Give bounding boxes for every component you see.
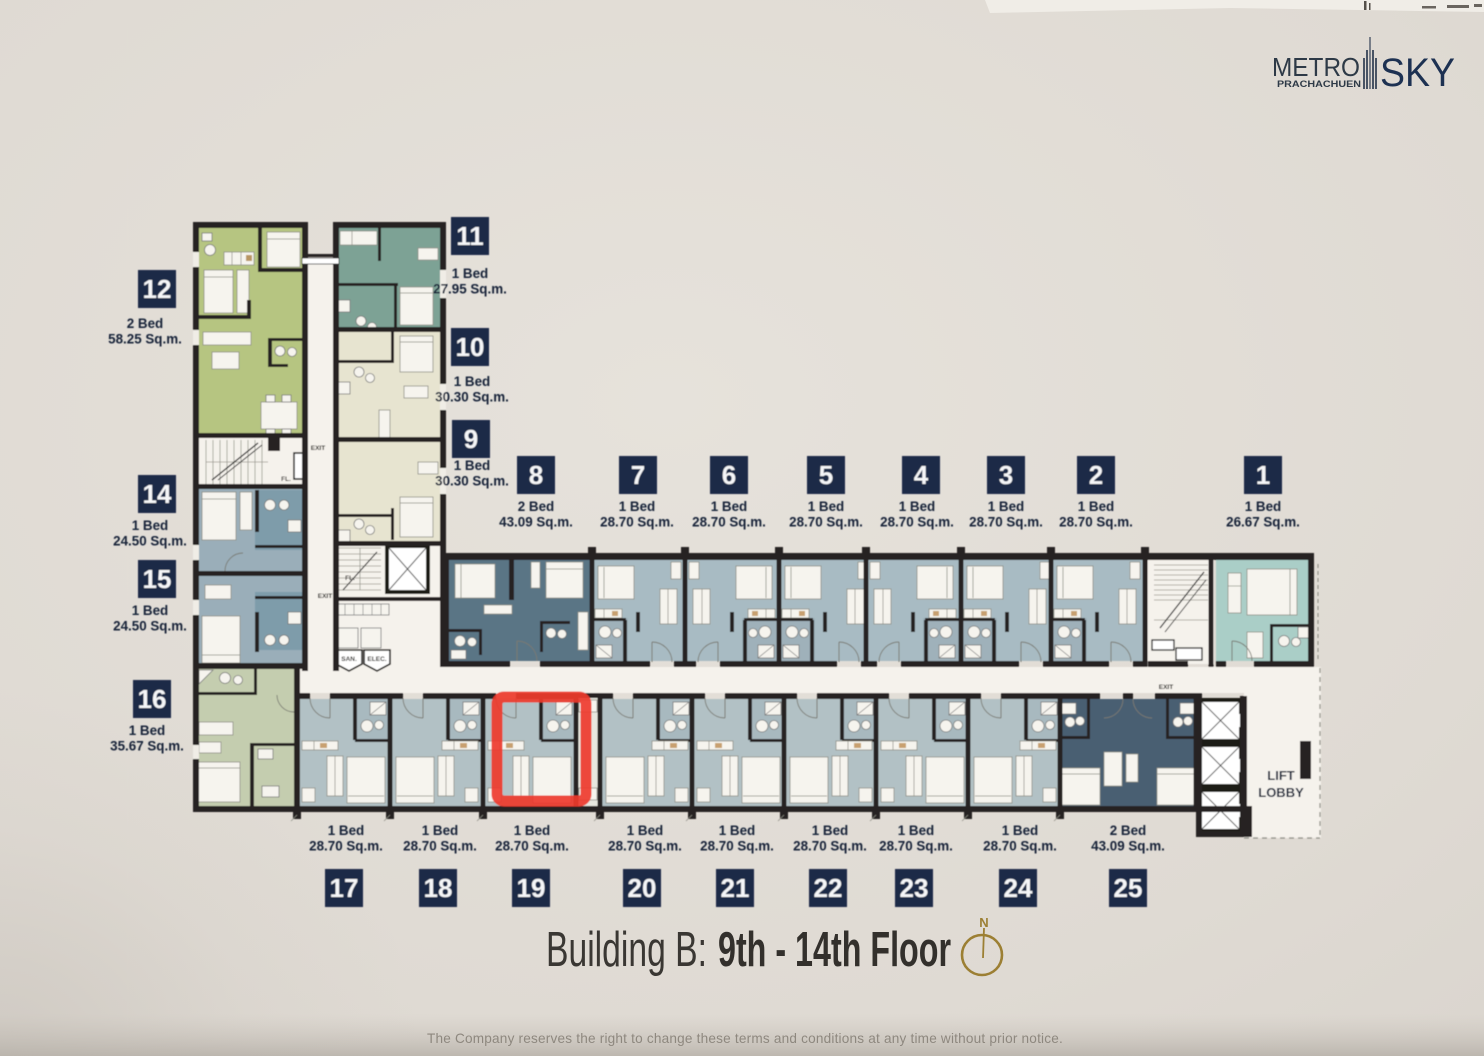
svg-text:1 Bed: 1 Bed: [132, 603, 168, 618]
svg-text:1 Bed: 1 Bed: [627, 823, 663, 838]
svg-text:28.70 Sq.m.: 28.70 Sq.m.: [793, 839, 867, 854]
svg-text:SKY: SKY: [1380, 51, 1455, 95]
svg-text:30.30 Sq.m.: 30.30 Sq.m.: [435, 474, 509, 489]
svg-text:METRO: METRO: [1272, 52, 1360, 82]
svg-text:9: 9: [464, 424, 478, 454]
svg-text:SAN.: SAN.: [341, 656, 357, 663]
svg-text:28.70 Sq.m.: 28.70 Sq.m.: [880, 515, 954, 530]
svg-text:28.70 Sq.m.: 28.70 Sq.m.: [600, 515, 674, 530]
svg-text:PRACHACHUEN: PRACHACHUEN: [1277, 79, 1361, 89]
svg-text:28.70 Sq.m.: 28.70 Sq.m.: [309, 839, 383, 854]
svg-text:1 Bed: 1 Bed: [514, 823, 550, 838]
svg-text:1 Bed: 1 Bed: [808, 499, 844, 514]
svg-text:20: 20: [628, 873, 657, 903]
svg-text:1 Bed: 1 Bed: [452, 266, 488, 281]
svg-text:9th - 14th Floor: 9th - 14th Floor: [718, 923, 951, 977]
svg-text:43.09 Sq.m.: 43.09 Sq.m.: [1091, 839, 1165, 854]
svg-text:2 Bed: 2 Bed: [518, 499, 554, 514]
svg-text:21: 21: [721, 873, 750, 903]
svg-text:2: 2: [1089, 460, 1103, 490]
svg-text:18: 18: [424, 873, 453, 903]
svg-text:1 Bed: 1 Bed: [719, 823, 755, 838]
svg-text:1 Bed: 1 Bed: [711, 499, 747, 514]
svg-text:12: 12: [143, 274, 172, 304]
svg-text:ELEC.: ELEC.: [367, 656, 386, 663]
svg-text:2 Bed: 2 Bed: [1110, 823, 1146, 838]
svg-text:11: 11: [456, 221, 484, 251]
svg-text:1 Bed: 1 Bed: [812, 823, 848, 838]
svg-text:28.70 Sq.m.: 28.70 Sq.m.: [403, 839, 477, 854]
svg-text:LIFT: LIFT: [1267, 768, 1294, 783]
svg-text:6: 6: [722, 460, 736, 490]
svg-text:4: 4: [914, 460, 929, 490]
svg-text:7: 7: [631, 460, 645, 490]
svg-text:28.70 Sq.m.: 28.70 Sq.m.: [969, 515, 1043, 530]
svg-text:1 Bed: 1 Bed: [422, 823, 458, 838]
svg-text:N: N: [979, 915, 988, 930]
svg-text:Building B:: Building B:: [546, 923, 707, 977]
svg-text:28.70 Sq.m.: 28.70 Sq.m.: [879, 839, 953, 854]
svg-text:28.70 Sq.m.: 28.70 Sq.m.: [983, 839, 1057, 854]
svg-text:17: 17: [330, 873, 359, 903]
svg-text:1 Bed: 1 Bed: [988, 499, 1024, 514]
svg-text:1 Bed: 1 Bed: [899, 499, 935, 514]
svg-text:26.67 Sq.m.: 26.67 Sq.m.: [1226, 515, 1300, 530]
svg-text:1: 1: [1256, 460, 1270, 490]
svg-text:28.70 Sq.m.: 28.70 Sq.m.: [789, 515, 863, 530]
svg-text:28.70 Sq.m.: 28.70 Sq.m.: [495, 839, 569, 854]
svg-text:28.70 Sq.m.: 28.70 Sq.m.: [1059, 515, 1133, 530]
svg-text:1 Bed: 1 Bed: [898, 823, 934, 838]
svg-text:27.95 Sq.m.: 27.95 Sq.m.: [433, 282, 507, 297]
svg-text:FL.: FL.: [281, 476, 291, 483]
svg-text:19: 19: [517, 873, 546, 903]
svg-text:1 Bed: 1 Bed: [129, 723, 165, 738]
svg-text:25: 25: [1114, 873, 1143, 903]
svg-text:1 Bed: 1 Bed: [454, 374, 490, 389]
svg-text:35.67 Sq.m.: 35.67 Sq.m.: [110, 739, 184, 754]
svg-text:3: 3: [999, 460, 1013, 490]
svg-text:1 Bed: 1 Bed: [1078, 499, 1114, 514]
svg-text:1 Bed: 1 Bed: [454, 458, 490, 473]
svg-text:2 Bed: 2 Bed: [127, 316, 163, 331]
svg-text:EXIT: EXIT: [1159, 684, 1173, 691]
svg-text:8: 8: [529, 460, 543, 490]
svg-text:LOBBY: LOBBY: [1258, 785, 1304, 800]
svg-text:15: 15: [143, 564, 172, 594]
svg-text:23: 23: [900, 873, 929, 903]
svg-text:5: 5: [819, 460, 833, 490]
svg-text:EXIT: EXIT: [311, 445, 325, 452]
svg-text:1 Bed: 1 Bed: [1245, 499, 1281, 514]
svg-text:28.70 Sq.m.: 28.70 Sq.m.: [608, 839, 682, 854]
svg-text:1 Bed: 1 Bed: [1002, 823, 1038, 838]
svg-text:24.50 Sq.m.: 24.50 Sq.m.: [113, 619, 187, 634]
svg-text:1 Bed: 1 Bed: [619, 499, 655, 514]
svg-text:10: 10: [456, 332, 485, 362]
svg-text:43.09 Sq.m.: 43.09 Sq.m.: [499, 515, 573, 530]
svg-text:16: 16: [138, 684, 167, 714]
svg-text:24.50 Sq.m.: 24.50 Sq.m.: [113, 534, 187, 549]
svg-text:22: 22: [814, 873, 843, 903]
svg-text:24: 24: [1004, 873, 1033, 903]
svg-text:The Company reserves the right: The Company reserves the right to change…: [427, 1031, 1063, 1046]
svg-text:14: 14: [143, 479, 172, 509]
svg-text:58.25 Sq.m.: 58.25 Sq.m.: [108, 332, 182, 347]
svg-text:28.70 Sq.m.: 28.70 Sq.m.: [700, 839, 774, 854]
svg-text:1 Bed: 1 Bed: [132, 518, 168, 533]
svg-text:30.30 Sq.m.: 30.30 Sq.m.: [435, 390, 509, 405]
svg-text:FL.: FL.: [345, 575, 355, 582]
svg-text:1 Bed: 1 Bed: [328, 823, 364, 838]
svg-text:EXIT: EXIT: [318, 593, 332, 600]
svg-text:28.70 Sq.m.: 28.70 Sq.m.: [692, 515, 766, 530]
